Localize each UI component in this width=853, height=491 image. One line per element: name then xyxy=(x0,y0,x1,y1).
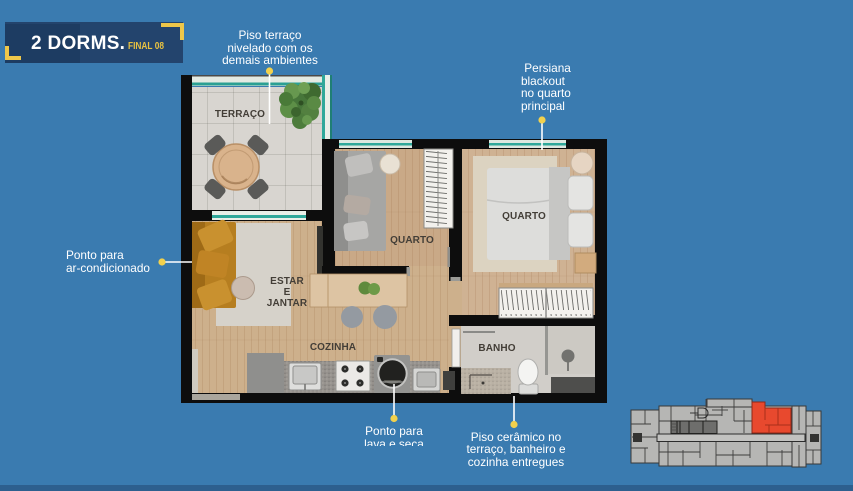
svg-text:QUARTO: QUARTO xyxy=(390,235,434,246)
svg-text:JANTAR: JANTAR xyxy=(267,298,308,309)
svg-text:COZINHA: COZINHA xyxy=(310,342,356,353)
svg-text:E: E xyxy=(284,287,291,298)
svg-text:QUARTO: QUARTO xyxy=(502,211,546,222)
svg-text:BANHO: BANHO xyxy=(478,343,515,354)
svg-text:ESTAR: ESTAR xyxy=(270,276,304,287)
svg-text:TERRAÇO: TERRAÇO xyxy=(215,109,265,120)
